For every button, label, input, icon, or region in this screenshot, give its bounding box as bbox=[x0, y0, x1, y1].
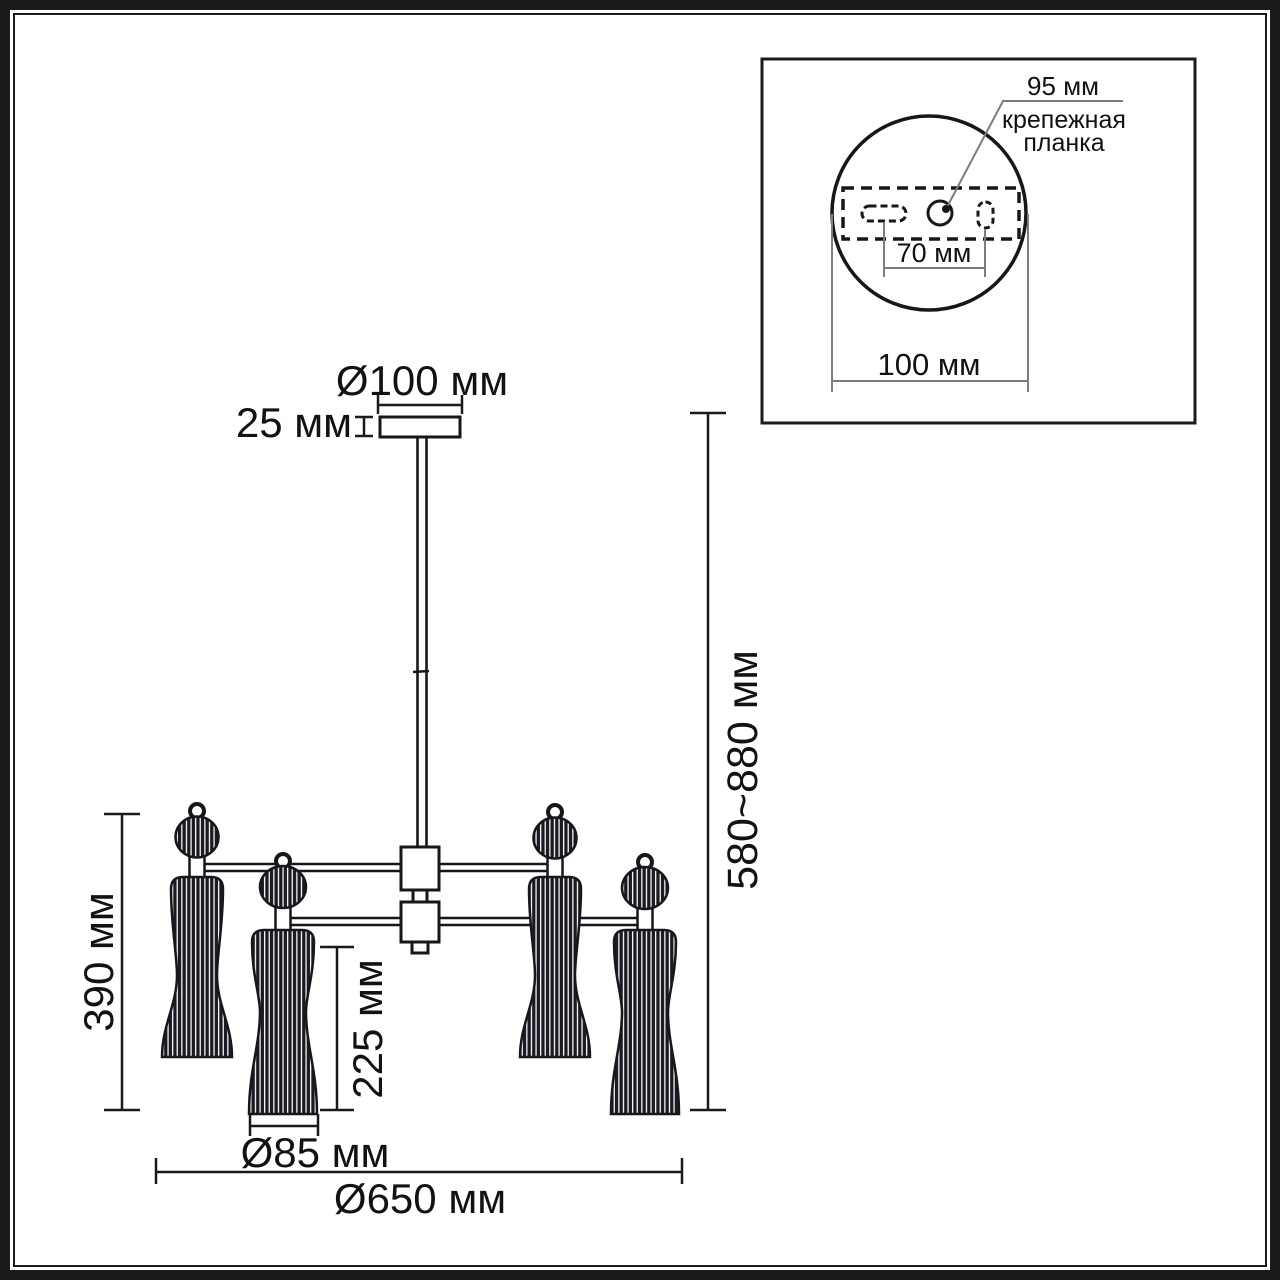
label-canopy-diameter: Ø100 мм bbox=[336, 357, 508, 404]
label-canopy-height: 25 мм bbox=[236, 399, 352, 446]
label-base-diameter: 100 мм bbox=[878, 347, 981, 382]
ribbed-ball-1 bbox=[176, 817, 219, 858]
glass-shade-1 bbox=[162, 877, 232, 1057]
shade-unit-4 bbox=[611, 855, 679, 1114]
label-shade-glass-height: 225 мм bbox=[344, 959, 391, 1099]
shade-unit-1 bbox=[162, 804, 232, 1057]
inset-view: 95 мм крепежная планка 70 мм 100 мм bbox=[762, 59, 1195, 423]
glass-shade-3 bbox=[520, 877, 590, 1057]
ribbed-ball-3 bbox=[534, 818, 577, 859]
label-bracket-line2: планка bbox=[1023, 129, 1104, 157]
label-height-range: 580~880 мм bbox=[719, 650, 767, 890]
label-fixture-diameter: Ø650 мм bbox=[334, 1175, 506, 1222]
hub-lower-block bbox=[401, 902, 439, 942]
hub-bottom-stub bbox=[412, 942, 428, 953]
glass-shade-4 bbox=[611, 930, 679, 1114]
shade-unit-2 bbox=[249, 854, 317, 1114]
label-plate-width: 95 мм bbox=[1027, 71, 1099, 101]
mount-slot-left bbox=[862, 206, 906, 221]
label-slot-spacing: 70 мм bbox=[897, 238, 972, 268]
leader-dot bbox=[942, 205, 950, 213]
label-shade-total-height: 390 мм bbox=[75, 892, 122, 1032]
ribbed-ball-4 bbox=[622, 867, 668, 909]
label-shade-diameter: Ø85 мм bbox=[241, 1129, 390, 1176]
main-view bbox=[162, 417, 679, 1114]
ceiling-canopy bbox=[380, 417, 460, 437]
mount-slot-right bbox=[978, 202, 993, 228]
chandelier-dimension-drawing: 95 мм крепежная планка 70 мм 100 мм bbox=[0, 0, 1280, 1280]
hub-connector bbox=[413, 890, 427, 902]
glass-shade-2 bbox=[249, 930, 317, 1114]
hub-upper-block bbox=[401, 847, 439, 890]
ribbed-ball-2 bbox=[260, 866, 306, 908]
shade-unit-3 bbox=[520, 805, 590, 1057]
rod-joint-mark bbox=[413, 671, 429, 672]
